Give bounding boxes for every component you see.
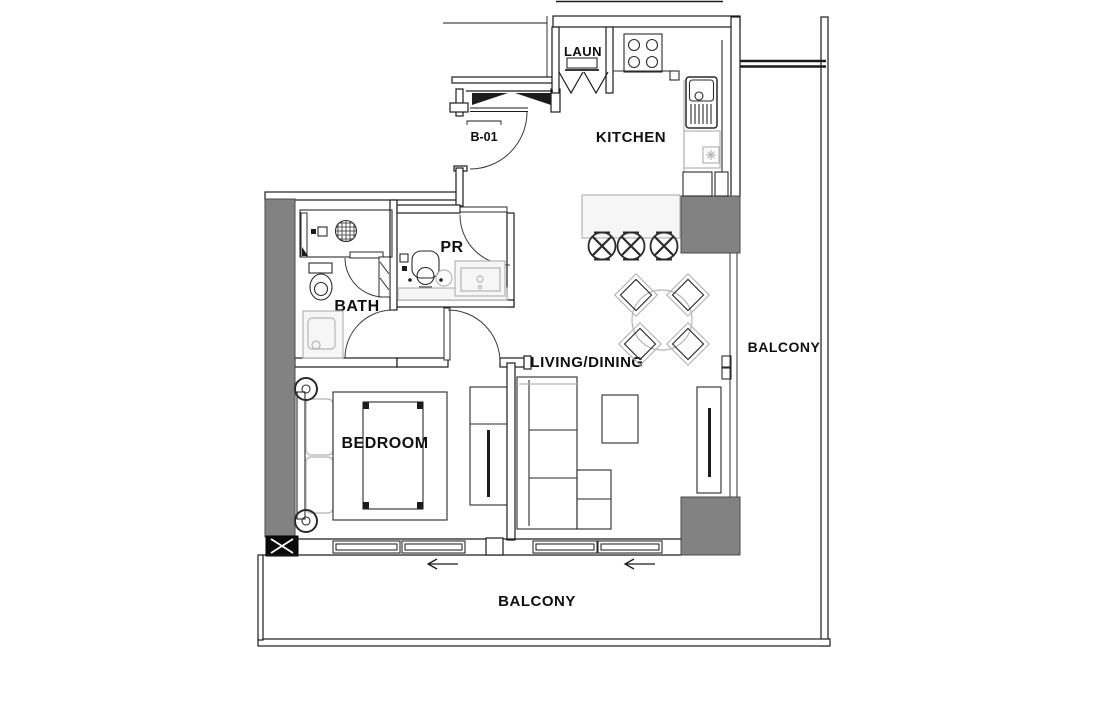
coffee-table	[602, 395, 638, 443]
bath-east-wall	[390, 200, 397, 310]
dining-chair-se	[667, 323, 709, 365]
kitchen-column	[681, 196, 740, 253]
bifold-door-right	[584, 72, 608, 93]
wardrobe	[470, 387, 507, 505]
balcony-bottom: BALCONY	[258, 555, 830, 646]
base-cabinet-2	[715, 172, 728, 196]
entry-left-wall	[450, 103, 468, 112]
unit-label: B-01	[470, 130, 497, 144]
pr-label: PR	[440, 239, 463, 256]
kitchen-label: KITCHEN	[596, 129, 666, 146]
bath-vanity	[303, 311, 343, 358]
shower	[300, 210, 392, 297]
headboard	[297, 392, 305, 519]
kitchen-north-wall	[553, 16, 740, 27]
balcony-bottom-label: BALCONY	[498, 593, 576, 610]
window-mullion-post	[486, 538, 503, 555]
window-panel-3	[533, 541, 597, 553]
bedroom-label: BEDROOM	[341, 435, 428, 452]
base-cabinet-1	[683, 172, 712, 196]
pr-wall-accessory	[400, 254, 408, 262]
south-window-wall	[262, 538, 681, 569]
bath-toilet	[309, 227, 332, 300]
pr-south-wall	[397, 300, 514, 307]
tv	[708, 408, 711, 477]
west-shaft-wall	[265, 199, 295, 537]
entry-door-leaf-right	[515, 93, 551, 105]
bedside-lamp-2	[295, 510, 317, 532]
dining-chair-nw	[615, 274, 657, 316]
bedroom-east-wall	[507, 363, 515, 540]
laundry-west-wall	[552, 27, 559, 93]
bedside-lamp-1	[295, 378, 317, 400]
pr-sink	[455, 261, 505, 296]
sofa	[517, 377, 611, 529]
unit-label-group: B-01	[467, 121, 501, 144]
kitchen-sink	[686, 77, 717, 128]
shower-door	[345, 257, 390, 297]
floor-plan-drawing: BALCONY BALCONY	[0, 0, 1120, 728]
balcony-right: BALCONY	[739, 17, 828, 646]
laundry-east-wall	[606, 27, 613, 93]
kitchen-east-wall	[731, 17, 740, 197]
slide-arrow-1	[428, 559, 458, 569]
tv-console	[697, 387, 721, 493]
laundry-closet: LAUN	[559, 44, 608, 93]
bed-frame	[333, 392, 447, 520]
duvet	[363, 402, 423, 509]
floor-plan: BALCONY BALCONY	[0, 0, 1120, 728]
living-dining-label: LIVING/DINING	[530, 354, 643, 371]
foyer-west-wall-lower	[456, 168, 463, 206]
bath-door-swing	[345, 310, 393, 358]
pr-north-wall	[397, 205, 460, 213]
counter-post	[670, 71, 679, 80]
corridor-south-wall	[397, 358, 448, 367]
stove	[624, 34, 662, 72]
window-panel-4	[598, 541, 662, 553]
living-column	[681, 497, 740, 555]
bifold-door-left	[559, 72, 583, 93]
dining-chair-ne	[667, 274, 709, 316]
wardrobe-rod	[487, 430, 490, 497]
pillow-1	[306, 399, 333, 455]
window-panel-1	[333, 541, 400, 553]
pr-toilet	[408, 251, 443, 287]
powder-room: PR	[398, 207, 510, 300]
bedroom-door	[444, 308, 500, 362]
shaft-x-box	[266, 536, 298, 556]
bed	[297, 392, 447, 520]
window-panel-2	[402, 541, 465, 553]
slide-arrow-2	[625, 559, 655, 569]
dishwasher	[684, 131, 720, 168]
pillow-2	[306, 457, 333, 513]
pr-door-leaf	[460, 207, 507, 212]
shower-threshold	[350, 252, 383, 258]
entry-door-leaf-left	[472, 93, 508, 105]
dining-set	[615, 274, 709, 365]
pr-floor-drain	[436, 270, 452, 286]
pr-east-wall	[507, 213, 514, 307]
laundry-label: LAUN	[564, 44, 602, 59]
living-dining: LIVING/DINING	[517, 274, 731, 529]
balcony-right-label: BALCONY	[748, 339, 821, 355]
pr-door-swing	[460, 215, 510, 265]
pr-wall-accessory-2	[402, 266, 407, 271]
dining-table	[632, 290, 692, 350]
bath-south-wall	[295, 358, 397, 367]
bath: BATH	[300, 210, 393, 358]
